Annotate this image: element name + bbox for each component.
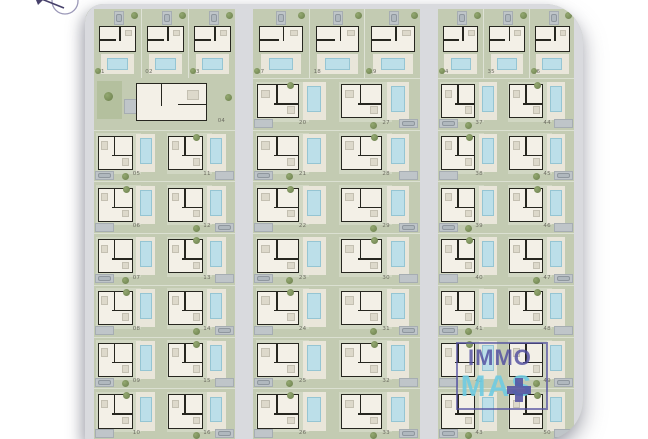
plot-cell: 16: [165, 388, 236, 439]
building: [341, 394, 383, 428]
interior-wall: [114, 292, 116, 311]
tree-icon: [355, 12, 362, 19]
pool-icon: [482, 190, 494, 216]
parking-pad: [389, 11, 399, 25]
furniture: [533, 210, 539, 218]
interior-wall: [112, 413, 132, 415]
car-icon: [551, 14, 557, 22]
pool-icon: [307, 190, 321, 216]
pool-icon: [550, 345, 562, 371]
car-icon: [402, 328, 415, 333]
pool-icon: [550, 293, 562, 319]
interior-wall: [274, 310, 298, 312]
building: [98, 239, 133, 273]
plot-cell: 10: [94, 388, 165, 439]
pool-icon: [391, 397, 405, 423]
interior-wall: [182, 207, 202, 209]
pool-icon: [391, 138, 405, 164]
pool-icon: [542, 58, 562, 70]
interior-wall: [112, 310, 132, 312]
plot-number: 31: [382, 327, 389, 333]
tree-icon: [533, 277, 540, 284]
plus-icon: [507, 378, 531, 402]
building: [99, 26, 136, 52]
interior-wall: [274, 362, 298, 364]
site-plan-canvas: 0102030405060708091011121314151617181920…: [0, 0, 648, 439]
building: [441, 291, 475, 325]
parking-pad: [439, 119, 458, 128]
plot-cell: 46: [506, 181, 574, 234]
pool-icon: [307, 397, 321, 423]
furniture: [122, 158, 129, 166]
car-icon: [505, 14, 511, 22]
tree-icon: [439, 68, 445, 74]
parking-pad: [95, 326, 114, 335]
interior-wall: [184, 137, 186, 156]
car-icon: [98, 173, 111, 178]
building: [341, 291, 383, 325]
pool-icon: [482, 293, 494, 319]
plot-cell: 45: [506, 130, 574, 183]
interior-wall: [100, 39, 116, 41]
interior-wall: [358, 310, 382, 312]
interior-wall: [195, 39, 211, 41]
pool-icon: [210, 293, 222, 319]
furniture: [101, 348, 108, 356]
interior-wall: [525, 240, 527, 259]
car-icon: [98, 380, 111, 385]
interior-wall: [112, 155, 132, 157]
furniture: [287, 262, 295, 270]
interior-wall: [462, 27, 464, 41]
tree-icon: [122, 173, 129, 180]
furniture: [465, 262, 471, 270]
car-icon: [557, 276, 570, 281]
pool-icon: [482, 86, 494, 112]
furniture: [101, 296, 108, 304]
furniture: [187, 90, 199, 101]
plot-cell: 03: [188, 9, 236, 78]
interior-wall: [161, 84, 163, 106]
interior-wall: [114, 189, 116, 208]
parking-pad: [457, 11, 467, 25]
plot-cell: 39: [438, 181, 506, 234]
tree-icon: [286, 173, 293, 180]
parking-pad: [95, 378, 114, 387]
parking-pad: [254, 326, 273, 335]
car-icon: [442, 121, 455, 126]
building: [371, 26, 414, 52]
furniture: [370, 210, 378, 218]
furniture: [345, 90, 354, 98]
plot-cell: 14: [165, 285, 236, 338]
plot-cell: 29: [337, 181, 421, 234]
car-icon: [442, 328, 455, 333]
furniture: [347, 30, 355, 36]
parking-pad: [215, 429, 234, 438]
tree-icon: [123, 186, 130, 193]
plot-cell: 20: [253, 78, 337, 131]
tree-icon: [286, 380, 293, 387]
interior-wall: [119, 27, 121, 41]
plot-number: 29: [382, 224, 389, 230]
plot-cell: 11: [165, 130, 236, 183]
furniture: [345, 400, 354, 408]
plot-number: 37: [475, 121, 482, 127]
furniture: [261, 193, 270, 201]
tree-icon: [531, 68, 537, 74]
interior-wall: [184, 395, 186, 414]
interior-wall: [214, 27, 216, 41]
furniture: [261, 245, 270, 253]
plot-number: 22: [299, 224, 306, 230]
building: [98, 188, 133, 222]
furniture: [513, 141, 520, 149]
plot-number: 46: [543, 224, 550, 230]
pool-icon: [391, 293, 405, 319]
parking-pad: [254, 429, 273, 438]
tree-icon: [193, 328, 200, 335]
parking-pad: [254, 119, 273, 128]
plot-cell: 24: [253, 285, 337, 338]
pool-icon: [482, 241, 494, 267]
furniture: [345, 348, 354, 356]
pool-icon: [210, 190, 222, 216]
road-left-edge: [85, 4, 94, 439]
car-icon: [98, 276, 111, 281]
plot-cell: 27: [337, 78, 421, 131]
interior-wall: [523, 155, 542, 157]
tree-icon: [95, 68, 101, 74]
tree-icon: [371, 134, 378, 141]
plot-number: 26: [299, 431, 306, 437]
furniture: [173, 30, 180, 36]
tree-icon: [370, 225, 377, 232]
car-icon: [402, 121, 415, 126]
car-icon: [257, 173, 270, 178]
plot-number: 14: [203, 327, 210, 333]
interior-wall: [184, 189, 186, 208]
pool-icon: [391, 241, 405, 267]
furniture: [370, 365, 378, 373]
plot-cell: 06: [94, 181, 165, 234]
interior-wall: [274, 103, 298, 105]
furniture: [101, 245, 108, 253]
furniture: [122, 262, 129, 270]
interior-wall: [184, 240, 186, 259]
car-icon: [218, 225, 231, 230]
furniture: [345, 141, 354, 149]
plot-cell: 15: [165, 337, 236, 390]
interior-wall: [274, 207, 298, 209]
interior-wall: [360, 240, 362, 259]
pool-icon: [497, 58, 517, 70]
furniture: [287, 106, 295, 114]
interior-wall: [358, 362, 382, 364]
plot-number: 28: [382, 172, 389, 178]
interior-wall: [114, 137, 116, 156]
car-icon: [557, 380, 570, 385]
furniture: [193, 365, 200, 373]
plot-cell: 07: [94, 233, 165, 286]
interior-wall: [525, 292, 527, 311]
furniture: [193, 417, 200, 425]
furniture: [370, 158, 378, 166]
pool-icon: [307, 86, 321, 112]
interior-wall: [167, 27, 169, 41]
plot-number: 48: [543, 327, 550, 333]
building: [509, 188, 543, 222]
plot-number: 21: [299, 172, 306, 178]
interior-wall: [360, 344, 362, 363]
plot-cell: 04: [94, 78, 235, 130]
building: [257, 239, 299, 273]
car-icon: [402, 225, 415, 230]
furniture: [172, 141, 179, 149]
pool-icon: [210, 138, 222, 164]
interior-wall: [455, 207, 474, 209]
plot-number: 25: [299, 379, 306, 385]
plot-number: 08: [133, 327, 140, 333]
building: [168, 239, 203, 273]
pool-icon: [391, 345, 405, 371]
car-icon: [116, 14, 122, 22]
pool-icon: [451, 58, 471, 70]
car-icon: [218, 431, 231, 436]
furniture: [261, 90, 270, 98]
plot-cell: 13: [165, 233, 236, 286]
plot-cell: 32: [337, 337, 421, 390]
interior-wall: [358, 258, 382, 260]
interior-wall: [554, 27, 556, 41]
tree-icon: [131, 12, 138, 19]
furniture: [513, 245, 520, 253]
plot-cell: 35: [483, 9, 529, 78]
interior-wall: [182, 310, 202, 312]
furniture: [172, 348, 179, 356]
interior-wall: [455, 258, 474, 260]
interior-wall: [525, 85, 527, 104]
building: [341, 343, 383, 377]
interior-wall: [274, 258, 298, 260]
building: [168, 291, 203, 325]
furniture: [465, 313, 471, 321]
parking-pad: [399, 326, 418, 335]
furniture: [445, 90, 452, 98]
interior-wall: [455, 155, 474, 157]
pool-icon: [140, 138, 152, 164]
pool-icon: [210, 241, 222, 267]
furniture: [445, 193, 452, 201]
plot-number: 43: [475, 431, 482, 437]
interior-wall: [276, 189, 278, 208]
plot-number: 33: [382, 431, 389, 437]
interior-wall: [360, 189, 362, 208]
furniture: [122, 313, 129, 321]
furniture: [370, 417, 378, 425]
furniture: [513, 193, 520, 201]
interior-wall: [184, 292, 186, 311]
pool-icon: [550, 397, 562, 423]
interior-wall: [358, 155, 382, 157]
furniture: [445, 245, 452, 253]
parking-pad: [215, 171, 234, 180]
furniture: [513, 90, 520, 98]
interior-wall: [148, 39, 164, 41]
car-icon: [459, 14, 465, 22]
interior-wall: [112, 258, 132, 260]
furniture: [533, 106, 539, 114]
car-icon: [442, 225, 455, 230]
interior-wall: [490, 39, 505, 41]
furniture: [193, 313, 200, 321]
furniture: [445, 296, 452, 304]
interior-wall: [455, 103, 474, 105]
interior-wall: [360, 395, 362, 414]
building: [489, 26, 524, 52]
tree-icon: [371, 237, 378, 244]
tree-icon: [534, 82, 541, 89]
parking-pad: [399, 223, 418, 232]
parking-pad: [276, 11, 286, 25]
tree-icon: [287, 186, 294, 193]
tree-icon: [465, 432, 472, 439]
plot-number: 38: [475, 172, 482, 178]
furniture: [125, 30, 132, 36]
building: [168, 343, 203, 377]
plot-cell: 09: [94, 337, 165, 390]
furniture: [465, 106, 471, 114]
plot-cell: 38: [438, 130, 506, 183]
parking-pad: [399, 119, 418, 128]
interior-wall: [536, 39, 551, 41]
furniture: [513, 296, 520, 304]
plot-number: 23: [299, 276, 306, 282]
interior-wall: [276, 85, 278, 104]
pool-icon: [307, 241, 321, 267]
building: [257, 343, 299, 377]
parking-pad: [554, 119, 573, 128]
furniture: [402, 30, 410, 36]
pool-icon: [550, 138, 562, 164]
plot-cell: 28: [337, 130, 421, 183]
parking-pad: [554, 326, 573, 335]
tree-icon: [466, 134, 473, 141]
garden: [97, 81, 122, 118]
car-icon: [278, 14, 284, 22]
building: [257, 188, 299, 222]
plot-cell: 22: [253, 181, 337, 234]
furniture: [533, 313, 539, 321]
pool-icon: [140, 345, 152, 371]
furniture: [445, 141, 452, 149]
furniture: [468, 30, 475, 36]
interior-wall: [509, 27, 511, 41]
tree-icon: [465, 225, 472, 232]
pool-icon: [202, 58, 223, 70]
plot-number: 04: [218, 119, 225, 125]
furniture: [287, 313, 295, 321]
interior-wall: [276, 344, 278, 363]
tree-icon: [179, 12, 186, 19]
building: [168, 394, 203, 428]
plot-cell: 05: [94, 130, 165, 183]
building: [147, 26, 184, 52]
pool-icon: [210, 397, 222, 423]
furniture: [465, 210, 471, 218]
plot-cell: 40: [438, 233, 506, 286]
interior-wall: [114, 395, 116, 414]
interior-wall: [184, 344, 186, 363]
interior-wall: [523, 103, 542, 105]
interior-wall: [523, 207, 542, 209]
furniture: [101, 141, 108, 149]
pool-icon: [550, 86, 562, 112]
building: [341, 136, 383, 170]
car-icon: [257, 276, 270, 281]
tree-icon: [123, 289, 130, 296]
furniture: [122, 417, 129, 425]
plot-number: 15: [203, 379, 210, 385]
tree-icon: [193, 432, 200, 439]
furniture: [101, 400, 108, 408]
interior-wall: [525, 137, 527, 156]
parking-pad: [95, 429, 114, 438]
parking-pad: [95, 274, 114, 283]
plot-cell: 19: [364, 9, 421, 78]
pool-icon: [140, 190, 152, 216]
furniture: [287, 158, 295, 166]
interior-wall: [112, 207, 132, 209]
tree-icon: [370, 122, 377, 129]
building: [257, 84, 299, 118]
parking-pad: [399, 274, 418, 283]
interior-wall: [457, 292, 459, 311]
building: [257, 136, 299, 170]
furniture: [533, 158, 539, 166]
parking-pad: [254, 378, 273, 387]
furniture: [533, 262, 539, 270]
tree-icon: [534, 186, 541, 193]
plot-cell: 17: [253, 9, 309, 78]
furniture: [261, 141, 270, 149]
interior-wall: [360, 292, 362, 311]
plot-number: 35: [487, 70, 494, 76]
pool-icon: [482, 138, 494, 164]
parking-pad: [215, 223, 234, 232]
pool-icon: [307, 293, 321, 319]
plot-cell: 25: [253, 337, 337, 390]
plot-cell: 18: [309, 9, 366, 78]
interior-wall: [360, 85, 362, 104]
plot-blocks: 0102030405060708091011121314151617181920…: [85, 4, 583, 154]
parking-pad: [254, 223, 273, 232]
tree-icon: [371, 341, 378, 348]
interior-wall: [457, 85, 459, 104]
furniture: [514, 30, 521, 36]
building: [316, 26, 359, 52]
parking-pad: [439, 171, 458, 180]
interior-wall: [358, 413, 382, 415]
tree-icon: [298, 12, 305, 19]
building: [98, 394, 133, 428]
parking-pad: [399, 378, 418, 387]
tree-icon: [370, 328, 377, 335]
plot-number: 13: [203, 276, 210, 282]
pool-icon: [155, 58, 176, 70]
furniture: [465, 158, 471, 166]
interior-wall: [360, 137, 362, 156]
